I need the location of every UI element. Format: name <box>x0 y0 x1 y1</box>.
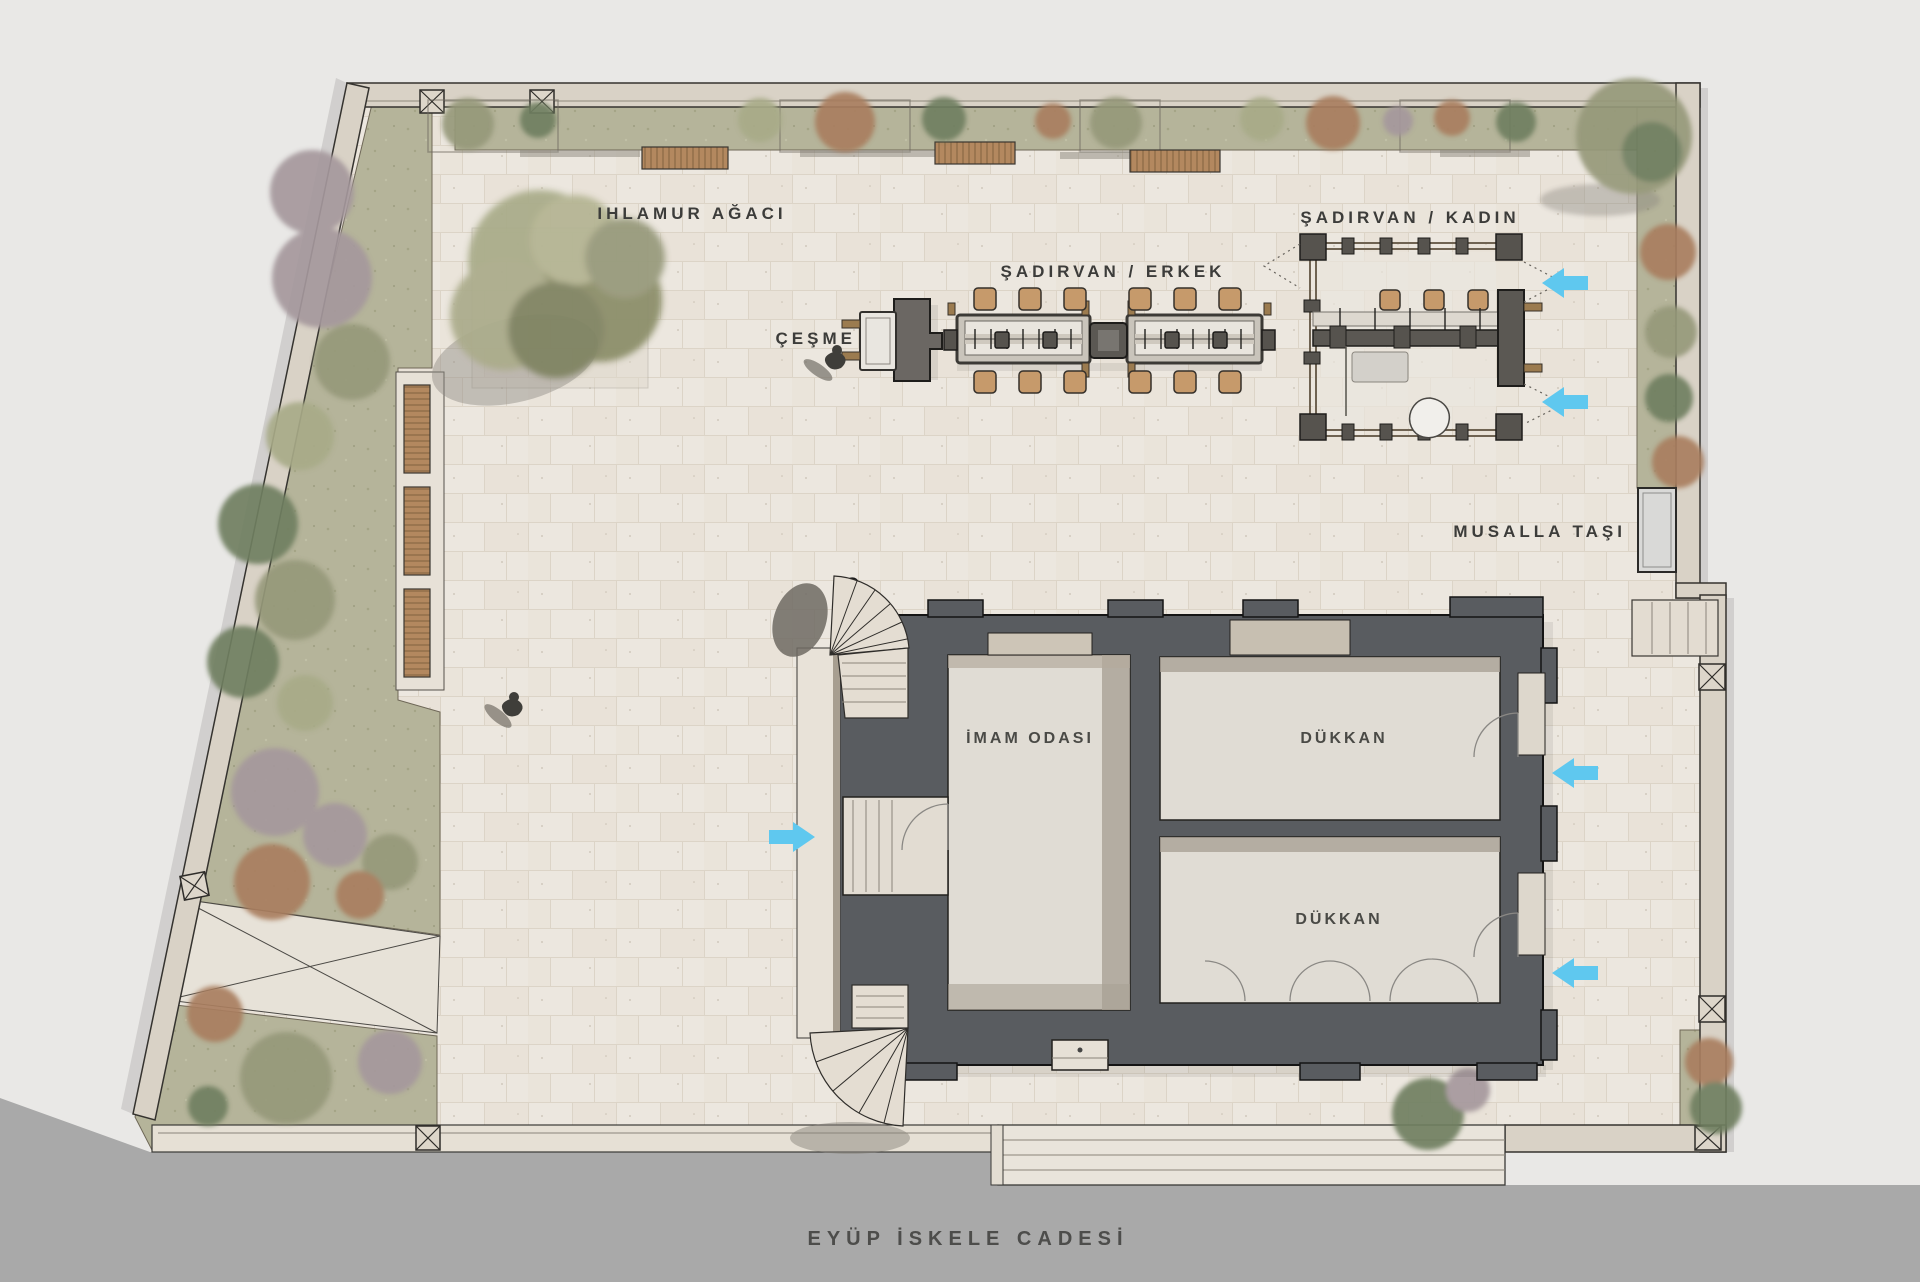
tree <box>234 844 310 920</box>
label-imam-room: İMAM ODASI <box>966 729 1094 747</box>
tree <box>1685 1038 1733 1086</box>
imam-room <box>948 633 1130 1010</box>
bench <box>1130 150 1220 172</box>
tree <box>272 228 372 328</box>
stool <box>1019 371 1041 393</box>
site-plan-drawing: IHLAMUR AĞACI ÇEŞME ŞADIRVAN / ERKEK ŞAD… <box>0 0 1920 1282</box>
stool <box>1219 371 1241 393</box>
label-shop-upper: DÜKKAN <box>1300 728 1387 747</box>
tree <box>922 97 966 141</box>
stool <box>1019 288 1041 310</box>
tree <box>207 626 279 698</box>
label-sadirvan-men: ŞADIRVAN / ERKEK <box>1001 262 1226 281</box>
tree <box>1383 106 1413 136</box>
label-cesme: ÇEŞME <box>776 329 856 348</box>
bench <box>404 385 430 473</box>
building <box>763 575 1557 1154</box>
tree <box>270 150 354 234</box>
tree <box>738 98 782 142</box>
column-x-icon <box>1699 996 1725 1022</box>
stool <box>1219 288 1241 310</box>
bench <box>404 589 430 677</box>
tree <box>1240 97 1284 141</box>
stool <box>1174 371 1196 393</box>
tree <box>1645 306 1697 358</box>
label-street: EYÜP İSKELE CADESİ <box>807 1227 1128 1250</box>
tree <box>218 484 298 564</box>
tree <box>1645 374 1693 422</box>
tree <box>1035 103 1071 139</box>
bench <box>642 147 728 169</box>
tree <box>1496 102 1536 142</box>
corner-post <box>1496 414 1522 440</box>
mat <box>1352 352 1408 382</box>
trough-unit <box>957 315 1090 363</box>
stool <box>1064 371 1086 393</box>
stool <box>1380 290 1400 310</box>
tap-icon <box>1524 303 1542 311</box>
stool <box>1468 290 1488 310</box>
corner-post <box>1496 234 1522 260</box>
column-x-icon <box>420 90 444 113</box>
stool <box>974 288 996 310</box>
fountain-wall <box>1498 290 1524 386</box>
label-shop-lower: DÜKKAN <box>1295 909 1382 928</box>
corner-post <box>1300 414 1326 440</box>
tree <box>1090 97 1142 149</box>
tree <box>1652 436 1704 488</box>
site-plan: IHLAMUR AĞACI ÇEŞME ŞADIRVAN / ERKEK ŞAD… <box>0 0 1920 1282</box>
label-sadirvan-women: ŞADIRVAN / KADIN <box>1300 208 1519 227</box>
tree <box>815 92 875 152</box>
tap-icon <box>842 320 860 328</box>
column-x-icon <box>1699 664 1725 690</box>
tree <box>303 803 367 867</box>
column-x-icon <box>180 872 209 900</box>
tree <box>240 1032 332 1124</box>
tree <box>1690 1082 1742 1134</box>
tree <box>266 402 334 470</box>
tree <box>520 102 556 138</box>
bottom-wall <box>1505 1125 1726 1152</box>
stool <box>1424 290 1444 310</box>
stool <box>1064 288 1086 310</box>
tree <box>277 675 333 731</box>
basin <box>1410 398 1450 438</box>
entry-hall <box>843 797 948 895</box>
tree <box>187 986 243 1042</box>
tree <box>255 560 335 640</box>
tree <box>1306 96 1360 150</box>
tree <box>188 1086 228 1126</box>
tree <box>442 98 494 150</box>
corner-post <box>1300 234 1326 260</box>
tree <box>314 324 390 400</box>
west-bench-strip <box>396 372 444 690</box>
tree <box>336 871 384 919</box>
tap-icon <box>1524 364 1542 372</box>
tree <box>1434 100 1470 136</box>
trough-unit <box>1127 315 1262 363</box>
stool <box>974 371 996 393</box>
column-x-icon <box>416 1126 440 1150</box>
bench <box>935 142 1015 164</box>
east-gate-steps <box>1632 600 1718 656</box>
fountain-niche <box>1052 1040 1108 1070</box>
label-linden-tree: IHLAMUR AĞACI <box>597 204 786 223</box>
stool <box>1129 371 1151 393</box>
bench <box>404 487 430 575</box>
tree <box>1640 224 1696 280</box>
tree <box>358 1030 422 1094</box>
label-musalla: MUSALLA TAŞI <box>1453 522 1626 541</box>
musalla-stone <box>1638 488 1676 572</box>
stool <box>1129 288 1151 310</box>
tree <box>1622 122 1682 182</box>
stool <box>1174 288 1196 310</box>
